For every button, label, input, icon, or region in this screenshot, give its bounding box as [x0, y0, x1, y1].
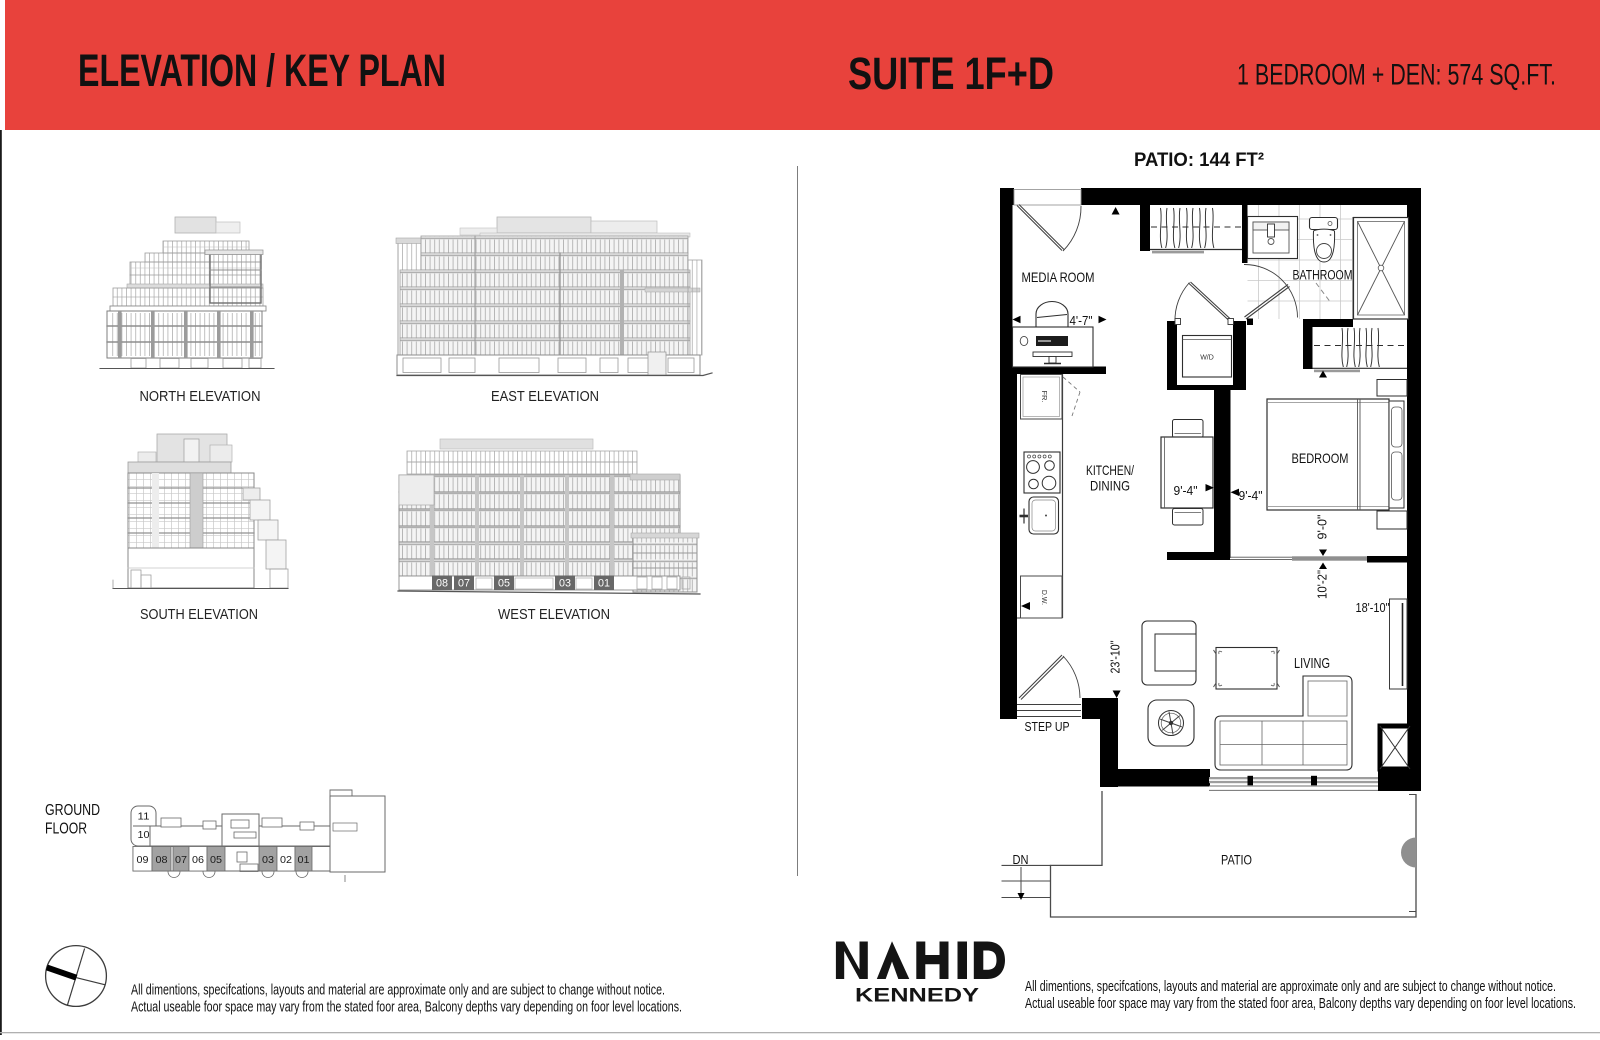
svg-text:08: 08: [156, 854, 168, 866]
svg-text:08: 08: [436, 578, 448, 590]
svg-text:23'-10": 23'-10": [1108, 640, 1123, 673]
svg-text:KITCHEN/: KITCHEN/: [1086, 463, 1134, 478]
svg-text:ELEVATION / KEY PLAN: ELEVATION / KEY PLAN: [78, 45, 446, 96]
svg-text:GROUND: GROUND: [45, 802, 100, 819]
svg-text:MEDIA ROOM: MEDIA ROOM: [1022, 270, 1095, 285]
svg-text:09: 09: [137, 854, 149, 866]
svg-text:Actual useable foor space may: Actual useable foor space may vary from …: [1025, 995, 1576, 1012]
svg-text:SUITE 1F+D: SUITE 1F+D: [848, 48, 1054, 99]
svg-text:07: 07: [458, 578, 470, 590]
svg-text:EAST ELEVATION: EAST ELEVATION: [491, 389, 599, 405]
svg-text:PATIO: 144 FT²: PATIO: 144 FT²: [1134, 150, 1264, 171]
svg-text:06: 06: [192, 854, 204, 866]
svg-text:9'-0": 9'-0": [1315, 514, 1330, 539]
svg-text:9'-4": 9'-4": [1174, 483, 1198, 498]
svg-text:11: 11: [138, 811, 150, 823]
svg-text:05: 05: [210, 854, 222, 866]
svg-text:03: 03: [262, 854, 274, 866]
svg-text:10'-2": 10'-2": [1315, 570, 1330, 599]
svg-text:FLOOR: FLOOR: [45, 821, 87, 838]
svg-text:BATHROOM: BATHROOM: [1293, 268, 1353, 283]
svg-text:FR.: FR.: [1040, 390, 1049, 402]
svg-text:BEDROOM: BEDROOM: [1292, 451, 1349, 466]
svg-text:PATIO: PATIO: [1221, 852, 1252, 868]
svg-text:01: 01: [598, 578, 610, 590]
svg-text:All dimentions, specifcations,: All dimentions, specifcations, layouts a…: [131, 982, 665, 999]
svg-text:01: 01: [298, 854, 310, 866]
svg-text:07: 07: [175, 854, 187, 866]
svg-text:9'-4": 9'-4": [1239, 488, 1263, 503]
svg-text:1 BEDROOM + DEN: 574 SQ.FT.: 1 BEDROOM + DEN: 574 SQ.FT.: [1237, 59, 1556, 92]
svg-text:18'-10": 18'-10": [1356, 600, 1390, 615]
svg-text:WEST ELEVATION: WEST ELEVATION: [498, 607, 610, 623]
svg-text:DINING: DINING: [1090, 479, 1130, 494]
svg-text:KENNEDY: KENNEDY: [855, 985, 979, 1007]
svg-text:03: 03: [559, 578, 571, 590]
svg-text:All dimentions, specifcations,: All dimentions, specifcations, layouts a…: [1025, 978, 1556, 995]
svg-text:02: 02: [280, 854, 292, 866]
svg-text:LIVING: LIVING: [1294, 655, 1330, 672]
svg-text:10: 10: [138, 829, 150, 841]
svg-text:STEP UP: STEP UP: [1025, 719, 1070, 734]
svg-text:DN: DN: [1013, 852, 1029, 867]
svg-text:SOUTH ELEVATION: SOUTH ELEVATION: [140, 607, 258, 623]
svg-text:4'-7": 4'-7": [1070, 313, 1093, 328]
svg-text:D.W.: D.W.: [1040, 590, 1047, 605]
svg-text:NORTH ELEVATION: NORTH ELEVATION: [140, 389, 261, 405]
svg-text:W/D: W/D: [1200, 355, 1214, 362]
svg-text:05: 05: [498, 578, 510, 590]
svg-text:Actual useable foor space may: Actual useable foor space may vary from …: [131, 999, 682, 1016]
